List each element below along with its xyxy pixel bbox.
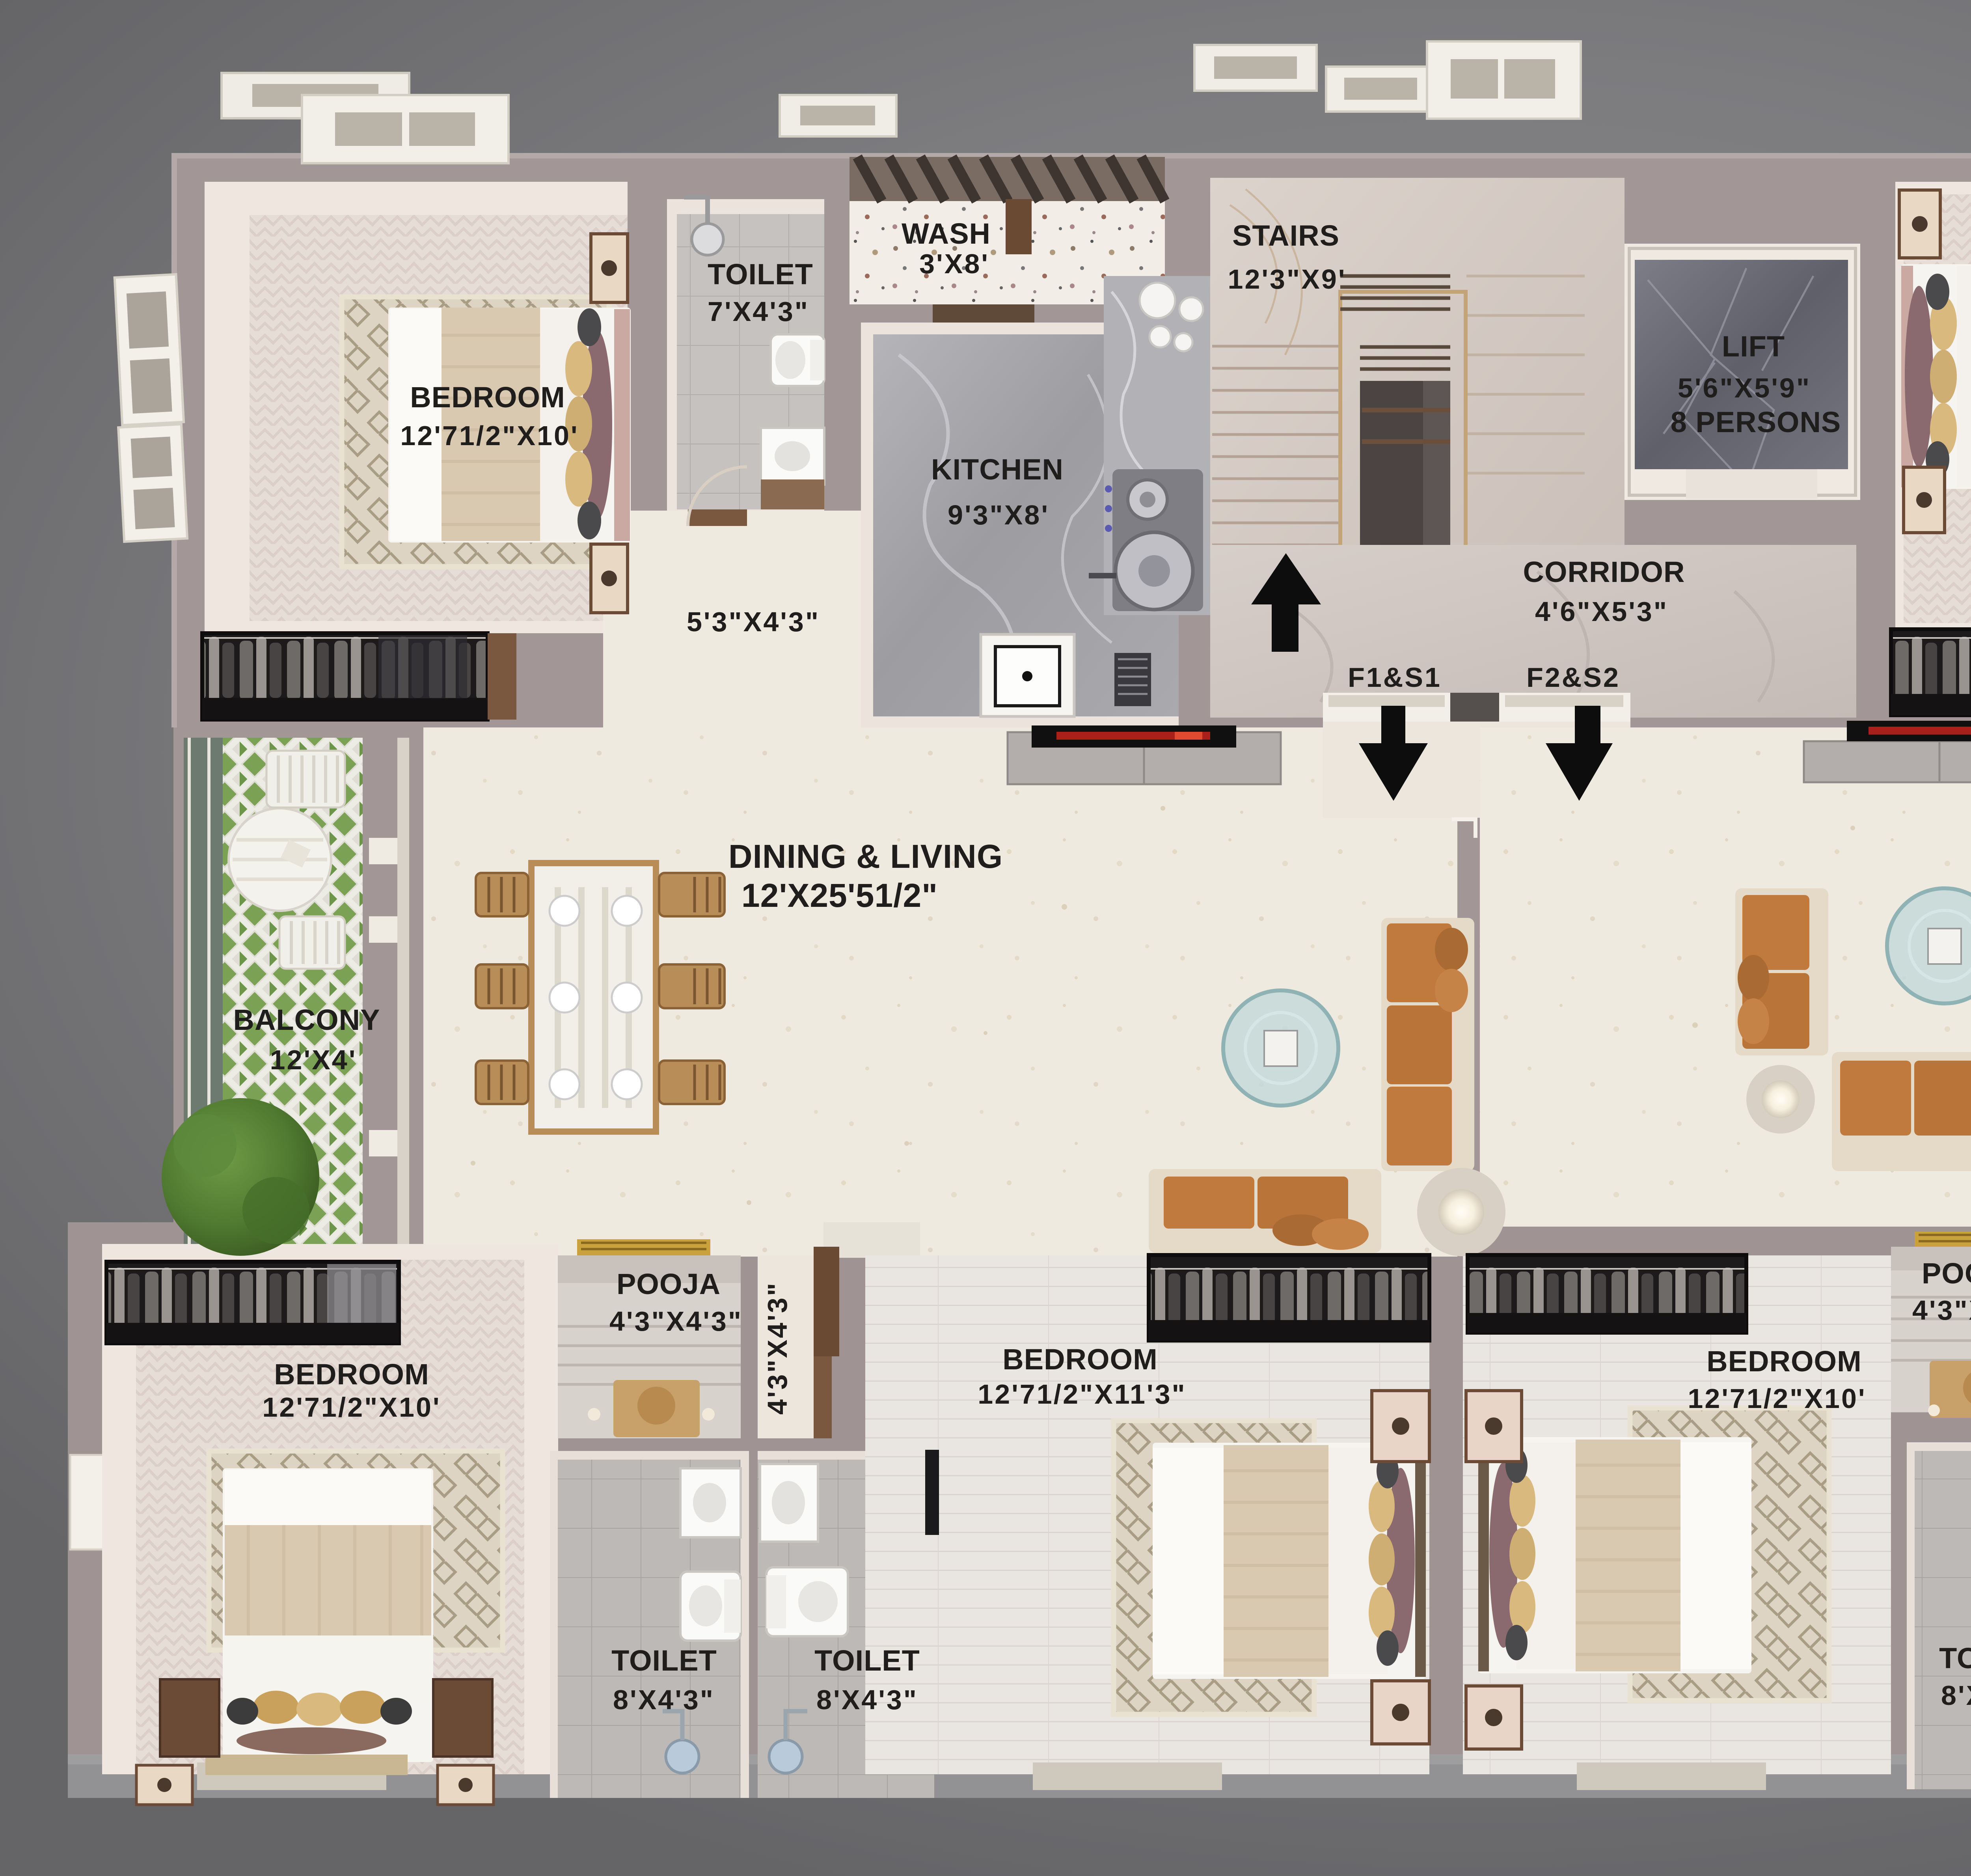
svg-text:8'X4'3": 8'X4'3" (1941, 1680, 1971, 1711)
svg-text:F1&S1: F1&S1 (1348, 662, 1442, 693)
svg-text:4'3"X4'3": 4'3"X4'3" (1912, 1295, 1971, 1326)
svg-text:BALCONY: BALCONY (233, 1003, 380, 1036)
svg-text:TOILET: TOILET (814, 1644, 920, 1677)
svg-text:12'X25'51/2": 12'X25'51/2" (741, 877, 938, 914)
svg-text:BEDROOM: BEDROOM (274, 1358, 429, 1391)
svg-text:KITCHEN: KITCHEN (931, 453, 1064, 486)
svg-text:TOILET: TOILET (611, 1644, 717, 1677)
svg-text:STAIRS: STAIRS (1232, 219, 1339, 252)
svg-text:12'3"X9': 12'3"X9' (1228, 264, 1347, 295)
svg-text:POOJA: POOJA (1922, 1257, 1971, 1290)
svg-text:BEDROOM: BEDROOM (410, 381, 565, 414)
svg-text:4'3"X4'3": 4'3"X4'3" (762, 1281, 793, 1415)
svg-text:F2&S2: F2&S2 (1526, 662, 1620, 693)
svg-text:4'6"X5'3": 4'6"X5'3" (1535, 596, 1668, 627)
svg-text:12'71/2"X10': 12'71/2"X10' (400, 420, 579, 451)
svg-text:TOILET: TOILET (1939, 1642, 1971, 1675)
svg-text:DINING & LIVING: DINING & LIVING (728, 838, 1003, 875)
svg-text:5'3"X4'3": 5'3"X4'3" (687, 606, 820, 637)
svg-text:TOILET: TOILET (708, 258, 813, 291)
svg-text:12'71/2"X11'3": 12'71/2"X11'3" (978, 1379, 1186, 1410)
svg-text:7'X4'3": 7'X4'3" (708, 296, 809, 327)
svg-text:8'X4'3": 8'X4'3" (613, 1684, 715, 1715)
svg-text:BEDROOM: BEDROOM (1706, 1345, 1861, 1378)
svg-text:5'6"X5'9": 5'6"X5'9" (1678, 373, 1811, 403)
svg-text:3'X8': 3'X8' (919, 248, 989, 279)
svg-text:8'X4'3": 8'X4'3" (816, 1684, 918, 1715)
svg-text:POOJA: POOJA (617, 1268, 721, 1300)
svg-text:LIFT: LIFT (1722, 330, 1785, 363)
svg-text:BEDROOM: BEDROOM (1002, 1343, 1157, 1376)
svg-text:12'71/2"X10': 12'71/2"X10' (262, 1392, 441, 1423)
svg-text:WASH: WASH (902, 217, 991, 250)
svg-text:12'X4': 12'X4' (270, 1044, 357, 1075)
svg-text:9'3"X8': 9'3"X8' (948, 500, 1049, 530)
svg-text:8 PERSONS: 8 PERSONS (1671, 406, 1841, 438)
svg-text:CORRIDOR: CORRIDOR (1523, 556, 1685, 588)
svg-text:4'3"X4'3": 4'3"X4'3" (609, 1306, 743, 1337)
svg-text:12'71/2"X10': 12'71/2"X10' (1688, 1383, 1866, 1414)
